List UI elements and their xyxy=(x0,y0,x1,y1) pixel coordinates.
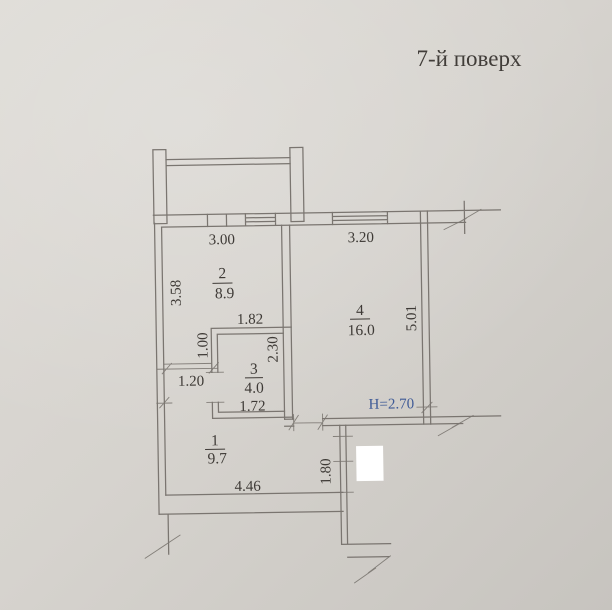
room1-area: 9.7 xyxy=(207,450,227,467)
room4-number: 4 xyxy=(356,302,364,319)
balcony-pillar-left xyxy=(153,150,167,224)
partition-wall xyxy=(282,225,293,419)
bottom-exterior-wall xyxy=(159,492,343,514)
window-room4 xyxy=(332,212,387,225)
room3-door-ticks xyxy=(206,372,224,402)
entry-corridor-wall xyxy=(340,425,391,558)
room4-right-wall xyxy=(420,211,430,424)
room2-number: 2 xyxy=(218,265,226,282)
dim-entry-depth: 1.80 xyxy=(318,458,334,484)
room2-area: 8.9 xyxy=(215,285,235,302)
wall-break-icon-right xyxy=(438,415,474,436)
dim-room2-width: 3.00 xyxy=(209,232,235,248)
dim-room3-depth: 2.30 xyxy=(265,336,281,362)
room3-area: 4.0 xyxy=(244,380,264,397)
dim-passage-width: 1.20 xyxy=(178,374,204,390)
dim-room3-bottom: 1.72 xyxy=(239,399,265,415)
wall-break-icon-top-right xyxy=(443,209,481,230)
dim-room4-width: 3.20 xyxy=(348,230,374,246)
wall-break-icon-bottom-left xyxy=(144,535,180,559)
dim-tick-right-wall xyxy=(416,402,437,413)
balcony-door-window xyxy=(207,213,275,226)
balcony-pillar-right xyxy=(290,147,304,221)
dim-room2-depth: 3.58 xyxy=(168,280,184,306)
floor-plan-drawing: 7-й поверх xyxy=(0,0,612,610)
dim-room4-depth: 5.01 xyxy=(404,305,420,331)
corridor-dim-ticks xyxy=(333,436,354,492)
dim-hall-width: 4.46 xyxy=(234,479,261,495)
room4-bottom-wall xyxy=(285,417,431,426)
room1-number: 1 xyxy=(211,432,219,449)
page-title: 7-й поверх xyxy=(417,46,522,71)
left-exterior-wall xyxy=(155,223,169,554)
dim-niche-depth: 1.00 xyxy=(195,332,211,358)
balcony-railing xyxy=(166,158,290,166)
whiteout-patch xyxy=(356,446,384,481)
floor-plan: 3.00 3.58 2 8.9 3.20 5.01 4 16.0 1.82 1.… xyxy=(138,144,506,586)
dim-room3-top: 1.82 xyxy=(237,312,263,328)
room4-door-opening xyxy=(289,414,328,432)
ceiling-height-note: H=2.70 xyxy=(369,396,415,413)
scanned-floor-plan-page: 7-й поверх xyxy=(0,0,612,610)
room3-number: 3 xyxy=(250,361,258,378)
room4-area: 16.0 xyxy=(348,322,376,339)
wall-break-icon-bottom-right xyxy=(354,556,391,584)
exterior-top-wall xyxy=(153,201,500,238)
